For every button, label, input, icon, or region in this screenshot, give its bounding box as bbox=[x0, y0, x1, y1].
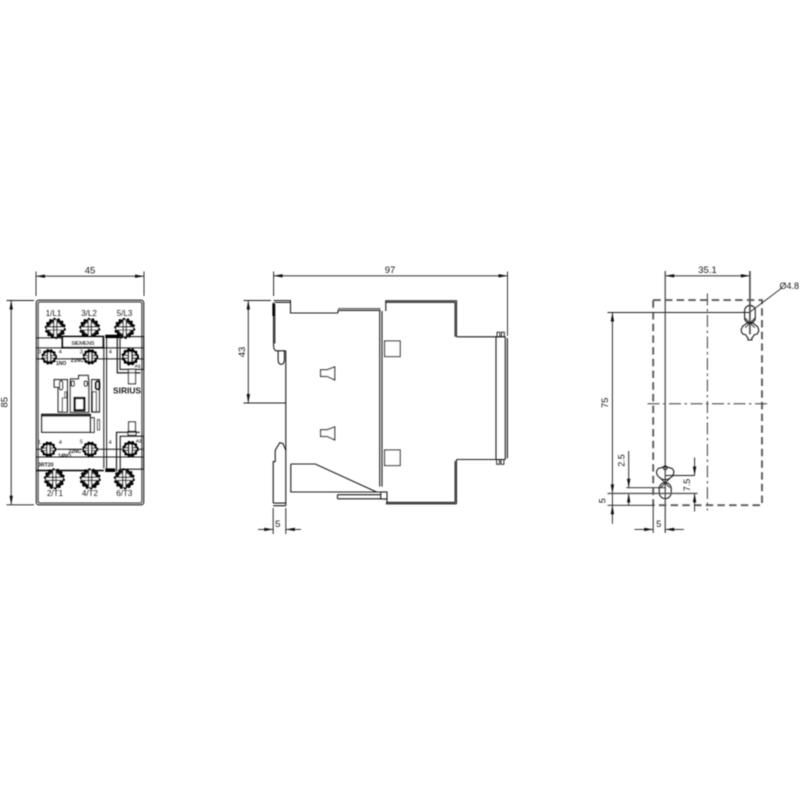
svg-text:Ø4.8: Ø4.8 bbox=[780, 281, 800, 291]
svg-text:1/L1: 1/L1 bbox=[46, 309, 62, 318]
svg-text:2/T1: 2/T1 bbox=[47, 489, 64, 498]
svg-text:14NO: 14NO bbox=[58, 453, 71, 459]
svg-text:4: 4 bbox=[109, 440, 112, 446]
svg-text:85: 85 bbox=[0, 397, 11, 408]
svg-text:2.5: 2.5 bbox=[617, 454, 627, 467]
svg-text:21NC: 21NC bbox=[71, 358, 84, 364]
svg-text:4: 4 bbox=[59, 350, 62, 356]
svg-text:A1: A1 bbox=[135, 363, 141, 368]
svg-text:5: 5 bbox=[275, 519, 280, 530]
svg-text:43: 43 bbox=[237, 347, 248, 358]
svg-text:4/T2: 4/T2 bbox=[82, 489, 99, 498]
svg-text:4: 4 bbox=[59, 440, 62, 446]
svg-text:1NO: 1NO bbox=[56, 361, 66, 367]
svg-text:75: 75 bbox=[600, 398, 611, 409]
svg-text:6/T3: 6/T3 bbox=[116, 489, 133, 498]
svg-text:SIRIUS: SIRIUS bbox=[113, 386, 141, 396]
svg-text:45: 45 bbox=[85, 266, 96, 277]
svg-text:SIEMENS: SIEMENS bbox=[71, 341, 95, 347]
svg-text:35.1: 35.1 bbox=[698, 265, 717, 276]
svg-text:3: 3 bbox=[80, 350, 83, 356]
svg-text:97: 97 bbox=[385, 265, 396, 276]
svg-text:3RT20: 3RT20 bbox=[38, 463, 54, 469]
svg-text:5: 5 bbox=[656, 519, 661, 529]
svg-text:7.5: 7.5 bbox=[682, 479, 692, 492]
svg-text:3/L2: 3/L2 bbox=[81, 309, 97, 318]
svg-text:5: 5 bbox=[80, 440, 83, 446]
svg-text:4: 4 bbox=[109, 350, 112, 356]
svg-text:1: 1 bbox=[38, 440, 41, 446]
svg-text:A2: A2 bbox=[136, 439, 142, 444]
svg-text:5/L3: 5/L3 bbox=[117, 309, 133, 318]
svg-text:3: 3 bbox=[38, 350, 41, 356]
svg-text:5: 5 bbox=[598, 498, 608, 503]
